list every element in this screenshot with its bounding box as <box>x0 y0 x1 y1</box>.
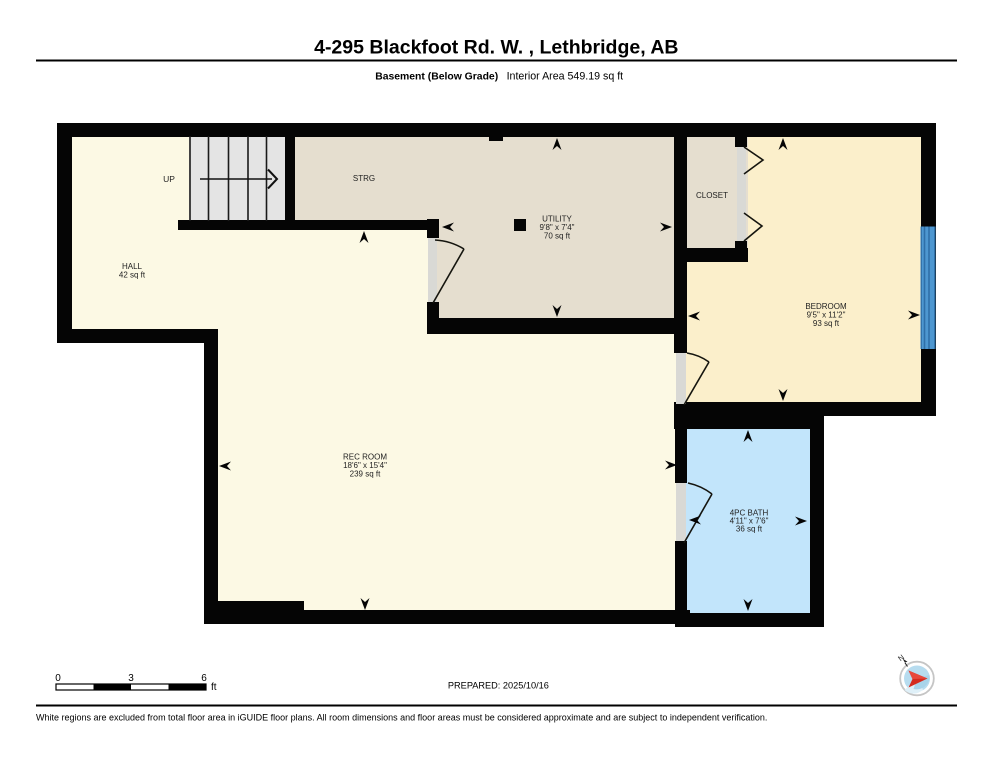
svg-text:36 sq ft: 36 sq ft <box>736 525 763 534</box>
svg-text:White regions are excluded fro: White regions are excluded from total fl… <box>36 713 767 723</box>
svg-text:Interior Area 549.19 sq ft: Interior Area 549.19 sq ft <box>507 71 624 83</box>
svg-text:239 sq ft: 239 sq ft <box>350 470 381 479</box>
svg-text:4-295 Blackfoot Rd. W. , Lethb: 4-295 Blackfoot Rd. W. , Lethbridge, AB <box>314 36 678 58</box>
svg-text:93 sq ft: 93 sq ft <box>813 319 840 328</box>
svg-text:ft: ft <box>211 682 217 693</box>
svg-text:STRG: STRG <box>353 174 375 183</box>
svg-text:CLOSET: CLOSET <box>696 191 728 200</box>
svg-text:70 sq ft: 70 sq ft <box>544 232 571 241</box>
svg-text:Basement (Below Grade): Basement (Below Grade) <box>375 72 498 83</box>
svg-text:6: 6 <box>201 673 207 684</box>
svg-text:3: 3 <box>128 673 134 684</box>
svg-text:0: 0 <box>55 673 61 684</box>
svg-text:UP: UP <box>163 174 175 184</box>
svg-text:PREPARED: 2025/10/16: PREPARED: 2025/10/16 <box>448 680 549 690</box>
svg-text:42 sq ft: 42 sq ft <box>119 271 146 280</box>
